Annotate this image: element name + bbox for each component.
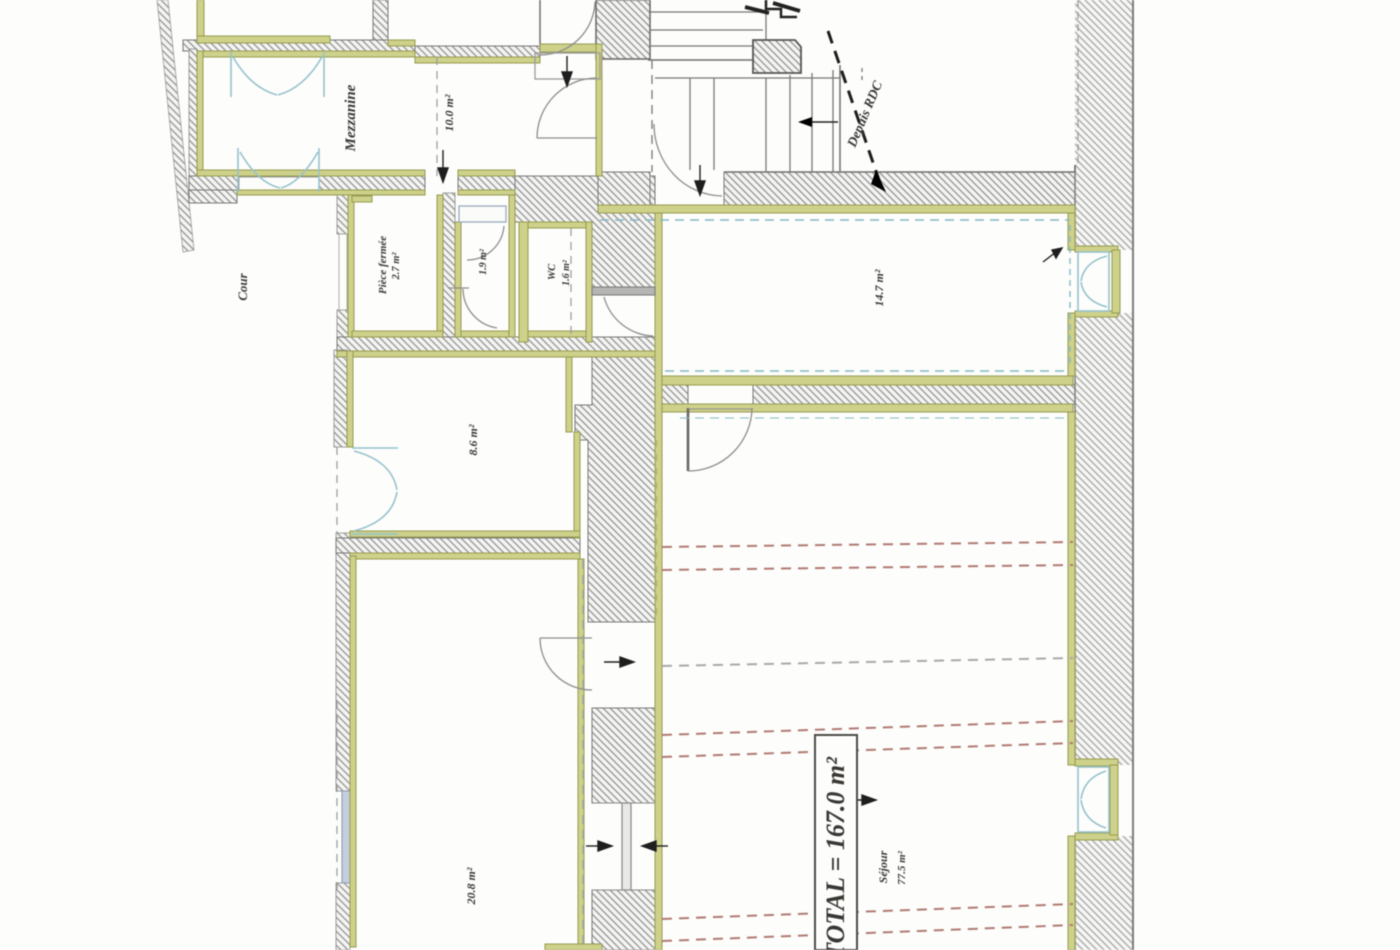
svg-text:WC: WC: [547, 263, 558, 280]
svg-text:1.6 m²: 1.6 m²: [561, 259, 572, 286]
svg-text:1.9 m²: 1.9 m²: [478, 248, 489, 275]
svg-text:TOTAL = 167.0 m²: TOTAL = 167.0 m²: [821, 756, 850, 950]
svg-text:77.5 m²: 77.5 m²: [896, 850, 908, 885]
svg-text:8.6 m²: 8.6 m²: [466, 424, 480, 455]
svg-text:20.8 m²: 20.8 m²: [464, 867, 478, 905]
svg-text:Cour: Cour: [235, 272, 250, 300]
svg-text:Pièce fermée: Pièce fermée: [377, 236, 389, 294]
svg-text:10.0 m²: 10.0 m²: [442, 94, 456, 131]
svg-text:Mezzanine: Mezzanine: [343, 84, 359, 152]
svg-text:14.7 m²: 14.7 m²: [872, 269, 886, 306]
svg-text:2.7 m²: 2.7 m²: [391, 252, 402, 281]
svg-text:Séjour: Séjour: [876, 850, 890, 883]
